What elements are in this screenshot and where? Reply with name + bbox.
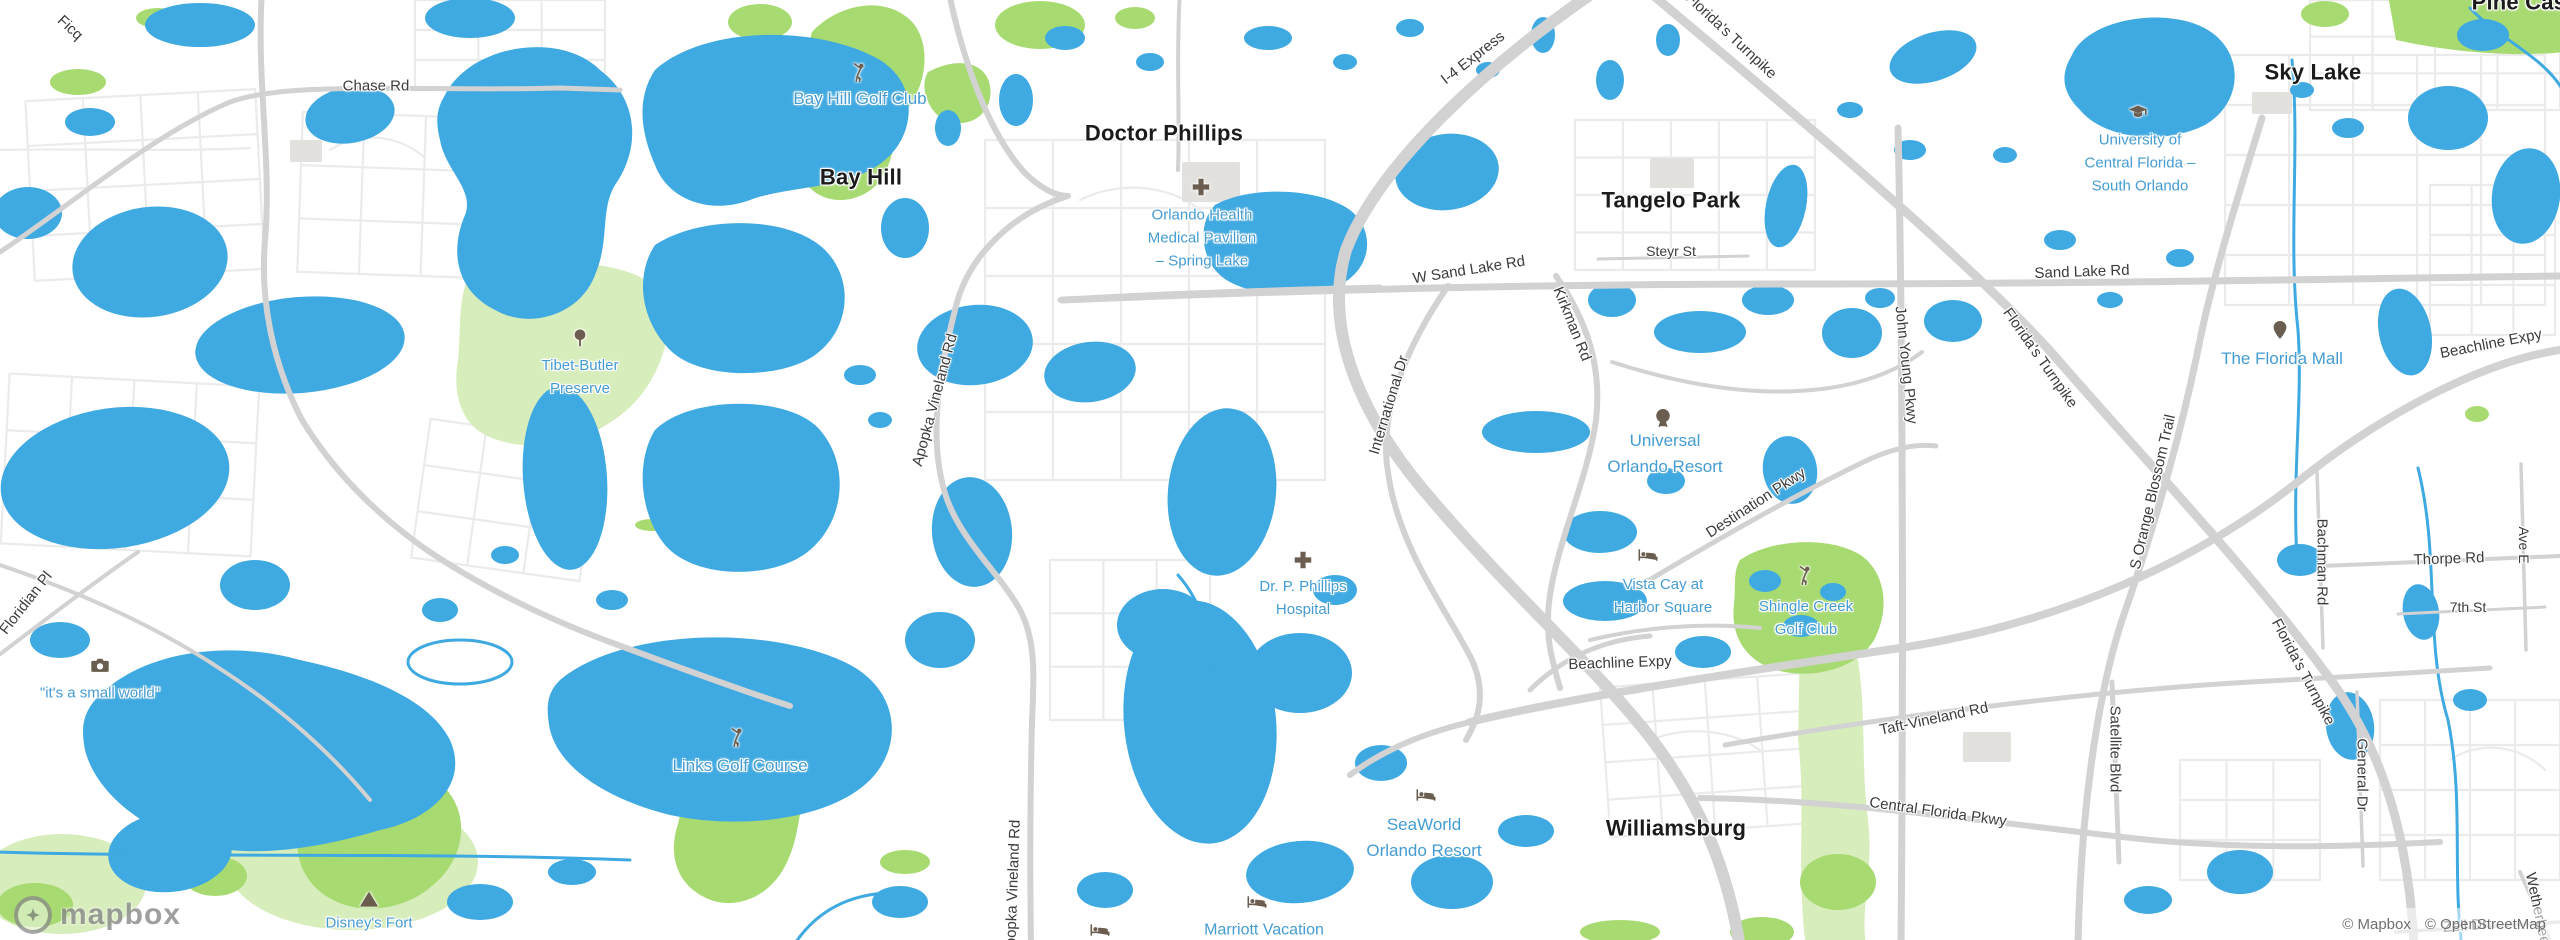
poi-label-line: Disney's Fort (325, 912, 412, 935)
poi-label-line: Preserve (542, 377, 619, 400)
road-label-sand-lake-rd: Sand Lake Rd (2034, 262, 2130, 283)
road-label-international-dr: International Dr (1366, 353, 1412, 456)
road-label-apopka-vineland-rd: Apopka Vineland Rd (1002, 819, 1024, 940)
road-label-john-young-pkwy: John Young Pkwy (1891, 305, 1921, 425)
poi-label-line: Orlando Health (1148, 204, 1256, 227)
poi-label-line: – Spring Lake (1148, 250, 1256, 273)
poi-label-line: Central Florida – (2085, 152, 2196, 175)
poi-label-links-golf-course: Links Golf Course (672, 753, 807, 779)
road-label-satellite-blvd: Satellite Blvd (2106, 706, 2123, 793)
poi-label-line: Tibet-Butler (542, 354, 619, 377)
attribution-mapbox-link[interactable]: © Mapbox (2342, 916, 2411, 933)
road-label-general-dr: General Dr (2353, 738, 2370, 811)
poi-label-line: Golf Club (1759, 618, 1853, 641)
city-label-sky-lake: Sky Lake (2264, 59, 2361, 84)
city-label-doctor-phillips: Doctor Phillips (1085, 120, 1243, 145)
road-label-chase-rd: Chase Rd (343, 77, 410, 94)
camera-icon (89, 654, 111, 676)
road-label-central-florida-pkwy: Central Florida Pkwy (1868, 794, 2007, 830)
attribution-osm-link[interactable]: © OpenStreetMap (2425, 916, 2546, 933)
road-label-i-4-express: I-4 Express (1438, 28, 1508, 88)
mapbox-logo-icon (14, 896, 52, 934)
city-label-bay-hill: Bay Hill (820, 164, 902, 189)
road-label-apopka-vineland-rd: Apopka Vineland Rd (909, 332, 961, 468)
poi-label-line: Orlando Resort (1607, 454, 1722, 480)
road-label-bachman-rd: Bachman Rd (2313, 519, 2330, 606)
road-label-w-sand-lake-rd: W Sand Lake Rd (1412, 253, 1527, 288)
road-label-florida-s-turnpike: Florida's Turnpike (2268, 616, 2339, 728)
poi-label-vista-cay-at-harbor-square: Vista Cay atHarbor Square (1614, 573, 1712, 619)
poi-label-line: Dr. P. Phillips (1259, 575, 1346, 598)
poi-label-line: The Florida Mall (2221, 346, 2343, 372)
road-label-floridian-pl: Floridian Pl (0, 568, 56, 638)
bed-icon (1089, 919, 1111, 940)
ferris-wheel-icon (1652, 407, 1674, 429)
poi-label-dr-p-phillips-hospital: Dr. P. PhillipsHospital (1259, 575, 1346, 621)
poi-label-line: Vista Cay at (1614, 573, 1712, 596)
poi-label-tibet-butler-preserve: Tibet-ButlerPreserve (542, 354, 619, 400)
poi-label-marriott-vacation: Marriott Vacation (1204, 918, 1324, 940)
city-label-tangelo-park: Tangelo Park (1602, 187, 1741, 212)
mapbox-logo[interactable]: mapbox (14, 896, 181, 934)
hospital-cross-icon (1190, 176, 1212, 198)
golfer-icon (726, 727, 748, 749)
tent-icon (358, 888, 380, 910)
poi-label-university-of-central-florida-south-orlando: University ofCentral Florida –South Orla… (2085, 129, 2196, 198)
poi-label-line: Shingle Creek (1759, 595, 1853, 618)
poi-label-the-florida-mall: The Florida Mall (2221, 346, 2343, 372)
poi-label-shingle-creek-golf-club: Shingle CreekGolf Club (1759, 595, 1853, 641)
bed-icon (1637, 544, 1659, 566)
poi-label-orlando-health-medical-pavilion-spring-lake: Orlando HealthMedical Pavilion– Spring L… (1148, 204, 1256, 273)
poi-label-bay-hill-golf-club: Bay Hill Golf Club (793, 86, 926, 112)
tree-icon (569, 327, 591, 349)
map-labels-layer: Doctor PhillipsBay HillTangelo ParkSky L… (0, 0, 2560, 940)
city-label-williamsburg: Williamsburg (1606, 815, 1746, 840)
road-label-beachline-expy: Beachline Expy (1568, 653, 1672, 674)
poi-label-line: Orlando Resort (1366, 838, 1481, 864)
poi-label-line: "it's a small world" (40, 682, 160, 705)
graduation-cap-icon (2127, 101, 2149, 123)
poi-label-line: Medical Pavilion (1148, 227, 1256, 250)
golfer-icon (848, 62, 870, 84)
poi-label-it-s-a-small-world: "it's a small world" (40, 682, 160, 705)
map-canvas[interactable]: Doctor PhillipsBay HillTangelo ParkSky L… (0, 0, 2560, 940)
bed-icon (1415, 784, 1437, 806)
road-label-steyr-st: Steyr St (1646, 243, 1696, 259)
poi-label-line: South Orlando (2085, 175, 2196, 198)
road-label-florida-s-turnpike: Florida's Turnpike (1682, 0, 1780, 83)
road-label-taft-vineland-rd: Taft-Vineland Rd (1878, 699, 1990, 739)
mapbox-wordmark: mapbox (60, 898, 181, 932)
road-label-ficq: Ficq (54, 12, 86, 44)
bed-icon (1246, 891, 1268, 913)
poi-label-line: Hospital (1259, 598, 1346, 621)
poi-label-seaworld-orlando-resort: SeaWorldOrlando Resort (1366, 812, 1481, 864)
attribution-bar: © Mapbox © OpenStreetMap (2324, 908, 2560, 940)
road-label-ave-e: Ave E (2516, 526, 2532, 563)
golfer-icon (1794, 565, 1816, 587)
road-label-florida-s-turnpike: Florida's Turnpike (1999, 305, 2081, 411)
poi-label-line: Marriott Vacation (1204, 918, 1324, 940)
map-pin-icon (2269, 319, 2291, 341)
poi-label-line: Universal (1607, 428, 1722, 454)
poi-label-line: University of (2085, 129, 2196, 152)
poi-label-disney-s-fort: Disney's Fort (325, 912, 412, 935)
road-label-7th-st: 7th St (2450, 599, 2487, 615)
poi-label-line: Harbor Square (1614, 596, 1712, 619)
road-label-beachline-expy: Beachline Expy (2439, 326, 2544, 363)
city-label-pine-castle: Pine Castle (2472, 0, 2560, 15)
road-label-thorpe-rd: Thorpe Rd (2413, 549, 2484, 569)
poi-label-universal-orlando-resort: UniversalOrlando Resort (1607, 428, 1722, 480)
poi-label-line: SeaWorld (1366, 812, 1481, 838)
poi-label-line: Links Golf Course (672, 753, 807, 779)
road-label-kirkman-rd: Kirkman Rd (1549, 284, 1594, 363)
hospital-cross-icon (1292, 549, 1314, 571)
poi-label-line: Bay Hill Golf Club (793, 86, 926, 112)
road-label-s-orange-blossom-trail: S Orange Blossom Trail (2127, 413, 2179, 571)
